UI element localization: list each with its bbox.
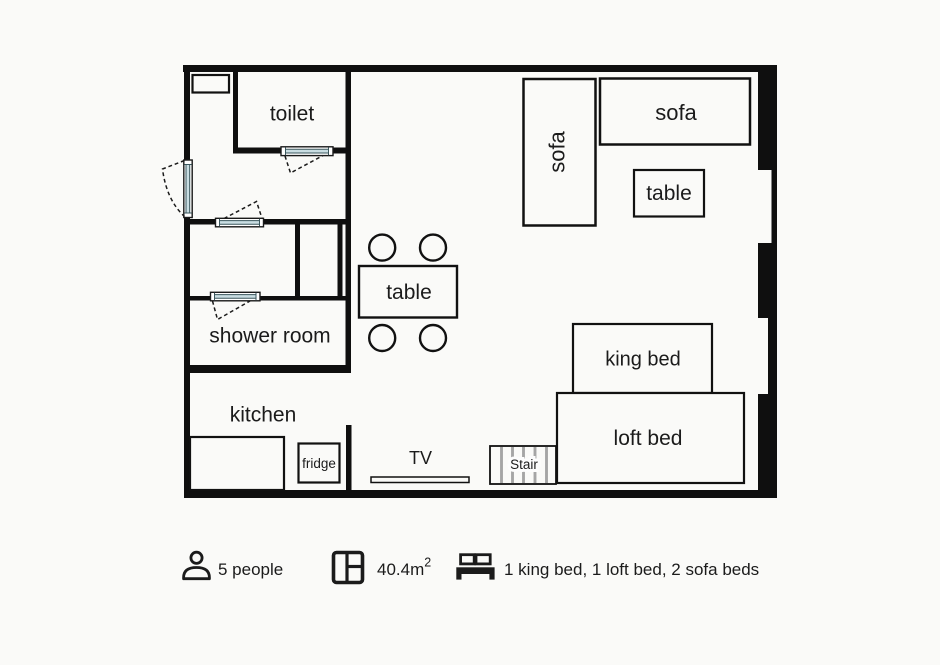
svg-text:fridge: fridge	[302, 456, 336, 471]
svg-text:shower room: shower room	[209, 325, 330, 348]
svg-text:Stair: Stair	[510, 457, 538, 472]
svg-text:table: table	[386, 281, 432, 304]
svg-text:toilet: toilet	[270, 103, 315, 126]
svg-text:table: table	[646, 182, 692, 205]
svg-text:sofa: sofa	[545, 130, 570, 172]
svg-text:1 king bed, 1 loft bed, 2 sofa: 1 king bed, 1 loft bed, 2 sofa beds	[504, 560, 759, 579]
svg-text:sofa: sofa	[655, 100, 697, 125]
svg-text:loft bed: loft bed	[614, 427, 683, 450]
svg-text:king bed: king bed	[605, 349, 681, 371]
svg-text:5 people: 5 people	[218, 560, 283, 579]
svg-text:kitchen: kitchen	[230, 404, 297, 427]
svg-text:TV: TV	[409, 448, 432, 468]
svg-text:40.4m2: 40.4m2	[377, 556, 431, 580]
